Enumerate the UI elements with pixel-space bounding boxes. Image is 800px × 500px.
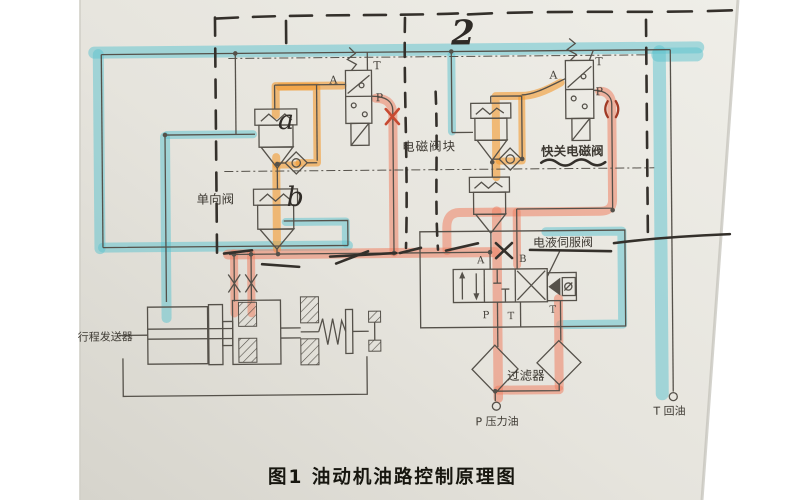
port-servo-b: B	[519, 254, 526, 265]
handwritten-number: 2	[450, 13, 475, 53]
port-left-solenoid-t: T	[373, 59, 381, 72]
scanned-page-photo: 2 a b 电磁阀块 快关电磁阀 单向阀 电液伺服阀 行程发送器 过滤器 P 压…	[0, 0, 800, 500]
handwritten-letter-a: a	[278, 105, 294, 136]
port-right-solenoid-a: A	[548, 69, 558, 82]
port-servo-a: A	[476, 255, 485, 266]
label-return-oil: T 回油	[652, 404, 685, 418]
label-quick-close-solenoid: 快关电磁阀	[541, 143, 604, 159]
port-left-solenoid-a: A	[328, 74, 338, 87]
label-check-valve: 单向阀	[196, 191, 234, 206]
label-pressure-oil: P 压力油	[475, 414, 518, 428]
label-solenoid-block: 电磁阀块	[402, 139, 456, 154]
port-servo-p: P	[483, 310, 490, 321]
label-filter: 过滤器	[507, 368, 545, 383]
label-stroke-transmitter: 行程发送器	[78, 329, 133, 343]
port-servo-t2: T	[549, 305, 556, 316]
figure-caption: 图1 油动机油路控制原理图	[268, 466, 517, 488]
port-right-solenoid-p: P	[596, 85, 604, 98]
port-left-solenoid-p: P	[376, 91, 384, 104]
handwritten-letter-b: b	[286, 182, 304, 213]
hydraulic-schematic: 2 a b 电磁阀块 快关电磁阀 单向阀 电液伺服阀 行程发送器 过滤器 P 压…	[0, 0, 800, 500]
port-servo-t: T	[508, 311, 515, 322]
label-servo-valve: 电液伺服阀	[533, 234, 593, 250]
port-right-solenoid-t: T	[595, 55, 603, 68]
